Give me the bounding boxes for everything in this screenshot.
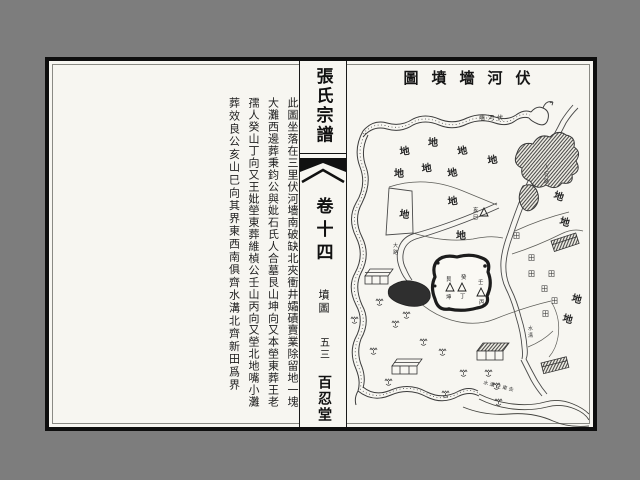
dark-mound: [388, 281, 430, 307]
book-page: 此圖坐落在三里伏河墻南破缺北夾衝井孀磧賣業除留地一塊 大灘西邊葬秉鈞公與妣石氏人…: [45, 57, 597, 431]
field-label: 田: [528, 270, 535, 278]
svg-text:壬: 壬: [478, 278, 484, 286]
fishtail-icon: [300, 158, 346, 188]
land-label: 地: [558, 214, 571, 229]
svg-text:丁: 丁: [460, 293, 466, 300]
section-label: 墳圖: [315, 289, 331, 319]
description-column-3: 孺人癸山丁向又王妣塋東葬維楨公壬山丙向又塋北地嘴小灘: [243, 97, 263, 427]
house-icon: [392, 359, 422, 374]
bridge-icon: [541, 357, 569, 374]
field-label: 田: [542, 310, 549, 318]
road-label: 大路: [393, 242, 398, 256]
house-icon: [365, 269, 393, 284]
svg-text:坤: 坤: [446, 293, 451, 301]
svg-text:癸: 癸: [461, 273, 467, 281]
field-label: 田: [513, 232, 520, 240]
description-column-4: 葬效良公亥山巳向其界東西南俱齊水溝北齊新田爲界: [223, 97, 243, 427]
genealogy-title: 張氏宗譜: [311, 61, 336, 153]
wall-label: 墻河伏: [479, 114, 506, 122]
svg-text:丙: 丙: [479, 299, 485, 306]
land-label: 地: [561, 311, 574, 326]
land-label: 地: [399, 207, 411, 221]
field-label: 田: [548, 270, 555, 278]
spine-title-box: 張氏宗譜: [300, 61, 346, 154]
stream-label: 水溝往東去: [483, 379, 516, 394]
land-label: 地: [570, 291, 583, 306]
hall-box: 百忍堂: [300, 375, 346, 425]
house-icon: [477, 343, 509, 360]
description-column-2: 大灘西邊葬秉鈞公與妣石氏人合墓艮山坤向又本塋東葬王老: [262, 97, 282, 427]
stream-lines: [463, 394, 589, 426]
hall-name: 百忍堂: [313, 375, 333, 425]
land-label: 地: [456, 143, 468, 158]
grave-bearing-top: 艮: [446, 276, 452, 283]
field-label: 田: [528, 254, 535, 262]
land-label: 地: [394, 167, 404, 180]
map-panel: 圖墳墻河伏: [345, 61, 589, 427]
bridge-icon: [551, 233, 579, 251]
land-label: 地: [487, 153, 499, 167]
tree-hill-hatched: [515, 132, 578, 210]
fishtail-mark: [300, 158, 346, 188]
path-label: 人行路: [544, 165, 549, 185]
field-label: 田: [551, 297, 558, 305]
description-text: 此圖坐落在三里伏河墻南破缺北夾衝井孀磧賣業除留地一塊 大灘西邊葬秉鈞公與妣石氏人…: [222, 97, 301, 427]
page-number: 五三: [316, 337, 331, 363]
land-label: 地: [399, 144, 410, 158]
land-label: 地: [428, 136, 438, 149]
land-label: 地: [446, 165, 458, 180]
section-box: 墳圖: [300, 289, 346, 319]
svg-text:亥: 亥: [473, 206, 479, 214]
map-title: 圖墳墻河伏: [345, 67, 589, 88]
ditch-label: 水溝: [528, 325, 533, 339]
grave-map: 艮 癸 坤 丁 壬 丙 亥 巳: [345, 91, 589, 427]
svg-text:巳: 巳: [473, 214, 479, 221]
land-label: 地: [421, 161, 432, 175]
screenshot-root: { "page": { "background": "#7d7d7d", "pa…: [0, 0, 640, 480]
land-label: 地: [456, 229, 466, 242]
land-label: 地: [552, 188, 566, 203]
land-label: 地: [447, 194, 458, 208]
volume-label: 卷十四: [311, 197, 336, 283]
page-number-box: 五三: [300, 337, 346, 363]
field-label: 田: [541, 285, 548, 293]
book-spine: 張氏宗譜 卷十四 墳圖 五三 百忍堂: [299, 61, 347, 427]
volume-box: 卷十四: [300, 197, 346, 283]
